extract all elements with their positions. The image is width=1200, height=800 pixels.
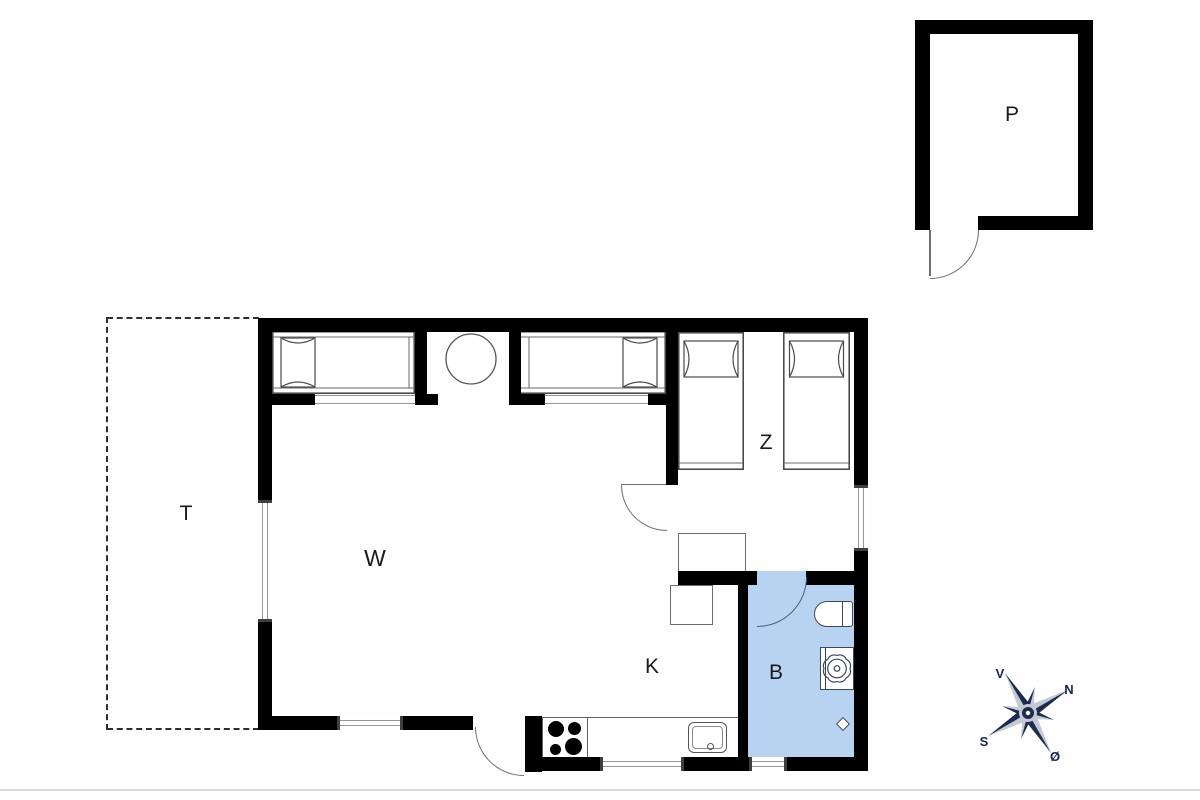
terrace-outline-left (106, 317, 108, 730)
washbasin-icon (820, 647, 854, 690)
window-bathroom-bottom (749, 757, 787, 771)
room-label-outbuilding: P (990, 104, 1034, 126)
window-living-bottom (337, 716, 403, 730)
compass-rose-icon: V N S Ø (966, 651, 1090, 775)
alcove1-front-wall-right (415, 394, 438, 405)
room-label-bathroom: B (754, 662, 798, 684)
se-bottom-wall-a (542, 757, 600, 771)
compass-north-label: N (1064, 682, 1073, 697)
entry-jamb-wall (525, 716, 542, 772)
compass-west-label: V (996, 666, 1005, 681)
compass-east-label: Ø (1050, 749, 1060, 764)
interior-door-swing-icon (621, 485, 667, 531)
page-bottom-rule (0, 789, 1200, 791)
window-kitchen-bottom (600, 757, 684, 771)
window-right-wall (854, 485, 868, 551)
bathroom-left-wall (738, 585, 748, 757)
outbuilding-bottom-wall (978, 216, 1078, 230)
kitchen-counter (542, 717, 740, 758)
sink-drain (707, 743, 714, 750)
se-bottom-wall-b (684, 757, 749, 771)
bedroom-partition-wall (666, 332, 678, 485)
main-bottom-wall-b (403, 716, 473, 730)
compass-south-label: S (980, 734, 989, 749)
stove-burner-icon (565, 738, 582, 755)
main-top-wall (258, 318, 868, 332)
outbuilding-door-swing-icon (930, 230, 979, 279)
stove-burner-icon (550, 744, 561, 755)
outbuilding-left-wall (915, 34, 930, 230)
cabinet (670, 585, 713, 625)
alcove-divider-wall-2 (509, 332, 521, 394)
stove-burner-icon (548, 721, 564, 737)
main-left-wall-upper (258, 332, 272, 500)
main-left-wall-lower (258, 622, 272, 718)
bathroom-top-wall-right (806, 571, 854, 585)
round-table-icon (445, 333, 497, 385)
single-bed-right (783, 332, 850, 470)
counter-divider (587, 718, 588, 757)
alcove2-front-wall-left (509, 394, 545, 405)
alcove2-front-rail (545, 395, 648, 404)
room-label-bedroom: Z (744, 432, 788, 454)
window-left-wall (258, 500, 272, 622)
toilet-cistern-line (842, 602, 843, 626)
alcove1-front-rail (315, 395, 415, 404)
outbuilding-right-wall (1078, 34, 1093, 230)
room-label-terrace: T (164, 503, 208, 525)
wardrobe (678, 533, 746, 573)
terrace-outline-bottom (107, 728, 259, 730)
alcove1-front-wall-left (258, 394, 315, 405)
pillow-icon (684, 341, 738, 377)
alcove-double-bed-left (272, 331, 415, 394)
main-bottom-wall-a (258, 716, 337, 730)
alcove-double-bed-right (518, 331, 666, 394)
kitchen-sink-icon (688, 722, 727, 753)
pillow-icon (281, 338, 315, 387)
floor-plan: W K B Z T P V (0, 0, 1200, 800)
main-right-wall-upper (854, 332, 868, 485)
terrace-outline-top (107, 317, 259, 319)
room-label-kitchen: K (630, 656, 674, 678)
main-right-wall-lower (854, 551, 868, 771)
washbasin-rosette (821, 648, 853, 688)
bathroom-top-wall-left (678, 571, 757, 585)
room-label-living: W (353, 547, 397, 569)
pillow-icon (790, 341, 844, 377)
alcove-divider-wall-1 (415, 332, 427, 394)
toilet-icon (814, 601, 853, 627)
entry-door-swing-icon (475, 727, 524, 776)
pillow-icon (623, 338, 657, 387)
stove-burner-icon (568, 722, 581, 735)
outbuilding-top-wall (915, 20, 1093, 34)
single-bed-left (678, 332, 744, 470)
